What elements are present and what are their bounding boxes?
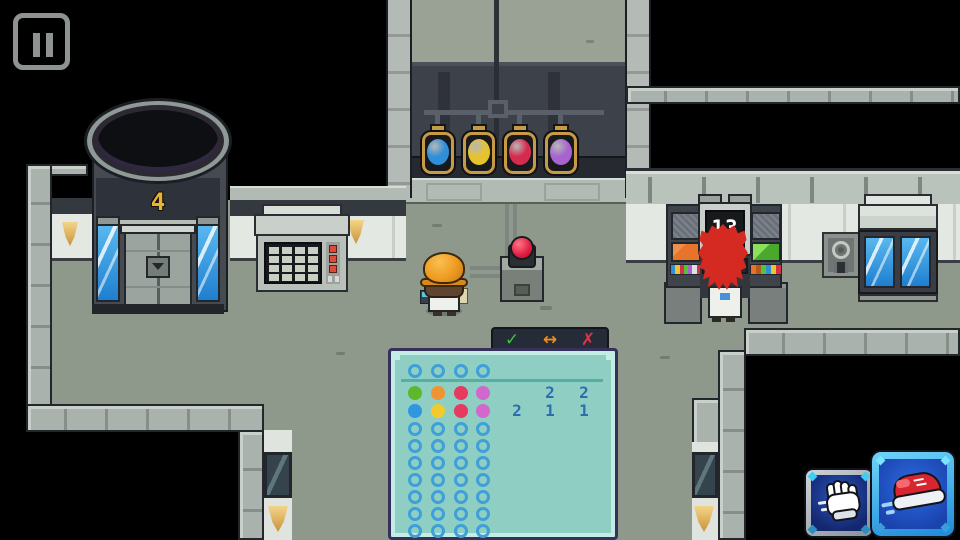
npc-foot — [712, 316, 721, 322]
puzzle-dot[interactable] — [408, 404, 422, 418]
puzzle-cell-empty[interactable] — [431, 507, 445, 521]
run-mode-button[interactable] — [870, 450, 956, 538]
wall-pipe — [424, 110, 604, 115]
button-strip — [750, 264, 782, 275]
rim-bottom-right — [744, 328, 960, 356]
puzzle-cell-empty[interactable] — [408, 507, 422, 521]
glass-cap — [196, 216, 220, 226]
puzzle-cell-empty[interactable] — [408, 364, 422, 378]
keypad-key[interactable] — [295, 265, 305, 272]
puzzle-dot[interactable] — [408, 386, 422, 400]
npc-coat-emblem — [720, 293, 730, 300]
ledge-panel — [426, 183, 482, 201]
wall-orb[interactable] — [545, 132, 577, 174]
ledge-post — [648, 177, 652, 203]
puzzle-cell-empty[interactable] — [476, 439, 490, 453]
puzzle-cell-empty[interactable] — [454, 507, 468, 521]
keypad-key[interactable] — [269, 247, 279, 254]
puzzle-cell-empty[interactable] — [408, 439, 422, 453]
puzzle-dot[interactable] — [431, 386, 445, 400]
puzzle-cell-empty[interactable] — [476, 473, 490, 487]
keypad-machine[interactable] — [252, 202, 352, 300]
top-corridor-ledge — [406, 178, 627, 204]
indicator-nub — [328, 276, 332, 282]
static-screen — [751, 212, 781, 240]
puzzle-cell-empty[interactable] — [408, 456, 422, 470]
indicator-led — [330, 256, 336, 262]
elevator-shaft-opening — [98, 110, 218, 172]
puzzle-dot[interactable] — [454, 386, 468, 400]
keypad-screen[interactable] — [264, 242, 322, 284]
floor-top-corridor[interactable] — [406, 0, 627, 64]
elevator-door[interactable] — [124, 232, 192, 306]
keypad-key[interactable] — [282, 274, 292, 281]
safe-hatch — [834, 262, 848, 273]
machine-base — [748, 282, 788, 324]
npc-foot — [726, 316, 735, 322]
clue-number: 2 — [539, 384, 561, 402]
corridor-wall-left — [386, 0, 412, 198]
down-arrow-icon — [152, 263, 164, 276]
strip-light — [776, 265, 781, 274]
npc-scientist[interactable] — [696, 224, 750, 324]
ledge-post — [810, 177, 814, 203]
rim-corridor-right — [718, 350, 746, 540]
puzzle-dot[interactable] — [454, 404, 468, 418]
floor-scuff — [586, 40, 594, 43]
puzzle-cell-empty[interactable] — [431, 422, 445, 436]
indicator-led — [330, 266, 336, 272]
safe-box[interactable] — [822, 232, 860, 278]
walk-mode-button[interactable] — [804, 468, 874, 538]
keypad-key[interactable] — [269, 274, 279, 281]
npc-hair — [698, 224, 748, 290]
floor-scuff — [432, 224, 442, 227]
pause-icon — [46, 33, 53, 57]
puzzle-cell-empty[interactable] — [408, 473, 422, 487]
keypad-key[interactable] — [269, 265, 279, 272]
keypad-key[interactable] — [295, 247, 305, 254]
keypad-key[interactable] — [308, 265, 318, 272]
npc-coat — [708, 286, 742, 318]
rim-left — [26, 164, 52, 430]
orb-glass — [550, 139, 572, 165]
rim-corner-right — [692, 398, 720, 444]
pedestal-notch — [514, 284, 530, 296]
indicator-nub — [335, 276, 339, 282]
safe-dial-center — [838, 247, 844, 253]
cabinet-lid — [858, 204, 938, 230]
rim-top-right — [626, 86, 960, 104]
puzzle-cell-empty[interactable] — [454, 364, 468, 378]
glass-cap — [96, 216, 120, 226]
floor-scuff — [540, 306, 552, 310]
elevator-glass-left — [96, 224, 120, 302]
cabinet-glass-pane — [900, 236, 931, 288]
player-hat — [423, 252, 465, 284]
clue-number: 2 — [506, 402, 528, 420]
keypad-key[interactable] — [308, 256, 318, 263]
window-cabinet[interactable] — [858, 194, 938, 302]
puzzle-cell-empty[interactable] — [431, 490, 445, 504]
wall-orb[interactable] — [422, 132, 454, 174]
elevator-floor-label: 4 — [126, 186, 190, 218]
puzzle-cell-empty[interactable] — [408, 422, 422, 436]
game-screen: 4 — [0, 0, 960, 540]
puzzle-cell-empty[interactable] — [431, 364, 445, 378]
keypad-key[interactable] — [295, 256, 305, 263]
keypad-key[interactable] — [282, 265, 292, 272]
pause-icon — [33, 33, 40, 57]
puzzle-board[interactable]: 22211 — [388, 348, 618, 540]
keypad-key[interactable] — [295, 274, 305, 281]
keypad-lid — [254, 214, 350, 236]
elevator[interactable]: 4 — [84, 98, 232, 316]
puzzle-cell-empty[interactable] — [476, 524, 490, 538]
rim-bottom-left — [26, 404, 264, 432]
corridor-window-right — [692, 452, 718, 498]
elevator-glass-right — [196, 224, 220, 302]
floor-scuff — [336, 352, 345, 355]
corridor-window-left — [264, 452, 292, 498]
red-button[interactable] — [512, 238, 532, 258]
door-line — [126, 286, 190, 288]
puzzle-cell-empty[interactable] — [454, 490, 468, 504]
cabinet-glass-pane — [864, 236, 895, 288]
keypad-key[interactable] — [282, 247, 292, 254]
puzzle-cell-empty[interactable] — [408, 490, 422, 504]
puzzle-cell-empty[interactable] — [431, 473, 445, 487]
wall-junction-box — [488, 100, 508, 118]
floor-cable — [494, 0, 499, 64]
orb-glass — [509, 139, 531, 165]
clue-number: 1 — [573, 402, 595, 420]
puzzle-cell-empty[interactable] — [476, 364, 490, 378]
puzzle-cell-empty[interactable] — [476, 490, 490, 504]
rim-corridor-left — [238, 430, 264, 540]
player-character — [418, 250, 470, 320]
puzzle-dot[interactable] — [476, 386, 490, 400]
green-screen — [751, 242, 781, 262]
keypad-key[interactable] — [269, 256, 279, 263]
puzzle-cell-empty[interactable] — [431, 524, 445, 538]
puzzle-cell-empty[interactable] — [454, 422, 468, 436]
puzzle-cell-empty[interactable] — [454, 524, 468, 538]
puzzle-cell-empty[interactable] — [454, 473, 468, 487]
ledge-panel — [544, 183, 600, 201]
puzzle-cell-empty[interactable] — [476, 456, 490, 470]
puzzle-cell-empty[interactable] — [408, 524, 422, 538]
clue-number: 1 — [539, 402, 561, 420]
keypad-side-panel — [326, 242, 340, 284]
glove-hand-icon — [815, 478, 862, 525]
elevator-base — [92, 304, 224, 314]
board-content: 22211 — [391, 351, 615, 537]
floor-scuff — [660, 356, 670, 359]
keypad-key[interactable] — [282, 256, 292, 263]
ledge-mid — [230, 186, 406, 200]
puzzle-cell-empty[interactable] — [454, 439, 468, 453]
indicator-led — [330, 246, 336, 252]
puzzle-cell-empty[interactable] — [431, 456, 445, 470]
safe-dial — [832, 241, 850, 259]
puzzle-cell-empty[interactable] — [476, 422, 490, 436]
orb-glass — [468, 139, 490, 165]
wall-orb[interactable] — [463, 132, 495, 174]
puzzle-cell-empty[interactable] — [476, 507, 490, 521]
orb-glass — [427, 139, 449, 165]
keypad-key[interactable] — [308, 274, 318, 281]
door-line — [126, 250, 190, 252]
keypad-key[interactable] — [308, 247, 318, 254]
puzzle-cell-empty[interactable] — [454, 456, 468, 470]
puzzle-cell-empty[interactable] — [431, 439, 445, 453]
wall-trim — [406, 62, 627, 66]
puzzle-dot[interactable] — [476, 404, 490, 418]
wall-orb[interactable] — [504, 132, 536, 174]
clue-number: 2 — [573, 384, 595, 402]
door-emblem — [146, 256, 170, 278]
cabinet-base — [858, 294, 938, 302]
puzzle-dot[interactable] — [431, 404, 445, 418]
pause-button[interactable] — [13, 13, 70, 70]
